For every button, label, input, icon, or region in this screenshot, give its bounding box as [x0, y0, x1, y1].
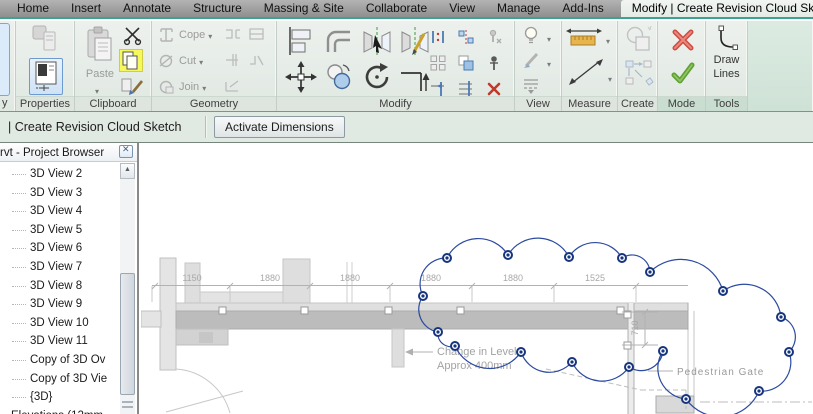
change-in-level-text: Change in Level: [437, 346, 517, 358]
panel-select-cutoff: y: [0, 21, 16, 111]
panel-tools: Draw Lines Tools: [706, 21, 748, 111]
override-caret[interactable]: [547, 54, 551, 72]
panel-mode: Mode: [658, 21, 706, 111]
hide-lightbulb-icon[interactable]: [522, 25, 542, 45]
annotations: Change in Level Approx 400mm Pedestrian …: [405, 346, 764, 378]
panel-create: Create: [618, 21, 658, 111]
pin-icon[interactable]: [485, 54, 503, 72]
join-icon: [158, 78, 176, 96]
plan-walls: [141, 258, 694, 414]
svg-text:1880: 1880: [503, 273, 523, 283]
ribbon: y Properties: [0, 21, 813, 112]
linework-icon[interactable]: [522, 76, 542, 96]
match-type-properties-icon[interactable]: [121, 77, 145, 97]
align-icon[interactable]: [285, 25, 317, 57]
tree-item[interactable]: Elevations (12mm: [0, 407, 120, 414]
join-label: Join: [179, 81, 199, 93]
profile-edit-icon[interactable]: [224, 78, 242, 94]
type-properties-icon[interactable]: [30, 24, 60, 56]
tab-modify-create-revision-cloud-sketch[interactable]: Modify | Create Revision Cloud Sketch: [621, 0, 813, 17]
ribbon-tab[interactable]: Manage: [486, 0, 551, 17]
measure-between-refs-icon[interactable]: [568, 55, 606, 89]
cut-geometry-icon: [158, 52, 176, 70]
finish-sketch-check-icon[interactable]: [670, 61, 696, 87]
array-icon[interactable]: [429, 54, 447, 72]
beam-join-icon[interactable]: [224, 26, 242, 42]
trim-extend-corner-icon[interactable]: [399, 61, 431, 93]
panel-view: View: [515, 21, 562, 111]
browser-scrollbar[interactable]: [120, 163, 135, 414]
panel-label-mode: Mode: [658, 96, 705, 111]
approx-400mm-text: Approx 400mm: [437, 360, 512, 372]
sketch-context-label: | Create Revision Cloud Sketch: [8, 112, 181, 142]
activate-dimensions-button[interactable]: Activate Dimensions: [214, 116, 345, 138]
tree-item[interactable]: {3D}: [0, 388, 120, 407]
hide-caret[interactable]: [547, 29, 551, 47]
tab-list: HomeInsertAnnotateStructureMassing & Sit…: [6, 0, 615, 17]
ribbon-tab[interactable]: Structure: [182, 0, 253, 17]
panel-label-properties: Properties: [16, 96, 74, 111]
ribbon-tab[interactable]: View: [438, 0, 486, 17]
main-area: rvt - Project Browser 3D View 2 3D View …: [0, 143, 813, 414]
cope-button[interactable]: Cope: [158, 25, 212, 45]
beam-cutback-icon[interactable]: [224, 52, 242, 68]
svg-text:1525: 1525: [585, 273, 605, 283]
panel-modify: Modify: [277, 21, 515, 111]
create-similar-icon[interactable]: [624, 59, 654, 91]
draw-lines-label-2[interactable]: Lines: [706, 68, 747, 80]
tree-item[interactable]: 3D View 2: [0, 165, 120, 184]
ribbon-tab[interactable]: Add-Ins: [551, 0, 614, 17]
mirror-pick-axis-icon[interactable]: [361, 25, 393, 57]
svg-text:1880: 1880: [421, 273, 441, 283]
draw-lines-arc-icon[interactable]: [714, 24, 742, 52]
tree-item[interactable]: Copy of 3D Ov: [0, 351, 120, 370]
tree-item[interactable]: 3D View 10: [0, 314, 120, 333]
cut-button[interactable]: Cut: [158, 51, 203, 71]
ribbon-tab-bar: HomeInsertAnnotateStructureMassing & Sit…: [0, 0, 813, 19]
splitter-grip-icon[interactable]: [122, 401, 133, 408]
panel-clipboard: Paste Clipboard: [75, 21, 152, 111]
draw-lines-label-1[interactable]: Draw: [706, 54, 747, 66]
tree-item[interactable]: 3D View 11: [0, 332, 120, 351]
properties-button[interactable]: [29, 58, 63, 95]
ribbon-tab[interactable]: Home: [6, 0, 60, 17]
cut-label: Cut: [179, 55, 196, 67]
cope-icon: [158, 26, 176, 44]
ribbon-tab[interactable]: Massing & Site: [253, 0, 355, 17]
scrollbar-thumb[interactable]: [120, 273, 135, 395]
svg-text:710: 710: [630, 320, 640, 335]
scale-icon[interactable]: [457, 54, 475, 72]
panel-label-view: View: [515, 96, 561, 111]
ribbon-tab[interactable]: Annotate: [112, 0, 182, 17]
unjoin-icon[interactable]: [248, 52, 266, 68]
project-browser-tree: 3D View 2 3D View 3 3D View 4 3D View 5 …: [0, 165, 120, 414]
svg-text:1880: 1880: [340, 273, 360, 283]
drawing-canvas[interactable]: 1150 1880 1880 1880 1880 1525 710 Change…: [141, 143, 813, 414]
rotate-icon[interactable]: [361, 61, 393, 93]
svg-text:1880: 1880: [260, 273, 280, 283]
panel-geometry: Cope Cut Join Geometry: [152, 21, 277, 111]
split-with-gap-icon[interactable]: [457, 28, 475, 46]
move-icon[interactable]: [285, 61, 317, 93]
copy-modify-icon[interactable]: [323, 61, 355, 93]
panel-label-create: Create: [618, 96, 657, 111]
ribbon-tab[interactable]: Insert: [60, 0, 112, 17]
measure-tape-icon[interactable]: [566, 25, 604, 51]
options-bar: | Create Revision Cloud Sketch Activate …: [0, 112, 813, 143]
measure-caret[interactable]: [606, 31, 610, 49]
tree-item[interactable]: 3D View 9: [0, 295, 120, 314]
wall-join-icon[interactable]: [248, 26, 266, 42]
paste-icon[interactable]: [85, 26, 115, 66]
measure2-caret[interactable]: [608, 69, 612, 87]
tree-item[interactable]: 3D View 7: [0, 258, 120, 277]
project-browser-title: rvt - Project Browser: [0, 145, 137, 162]
pedestrian-gate-text: Pedestrian Gate: [677, 367, 764, 378]
create-group-icon[interactable]: [624, 24, 654, 56]
join-button[interactable]: Join: [158, 77, 206, 97]
cut-caret[interactable]: [199, 52, 203, 70]
panel-label-clipboard: Clipboard: [75, 96, 151, 111]
ribbon-tab[interactable]: Collaborate: [355, 0, 438, 17]
copy-icon-highlighted[interactable]: [119, 49, 143, 72]
modify-select-label-partial: y: [2, 96, 8, 111]
cope-label: Cope: [179, 29, 205, 41]
cancel-sketch-x-icon[interactable]: [670, 27, 696, 53]
paste-button-label[interactable]: Paste: [83, 68, 117, 80]
options-separator: [205, 116, 206, 138]
split-element-icon[interactable]: [429, 28, 447, 46]
mirror-draw-axis-icon[interactable]: [399, 25, 431, 57]
offset-icon[interactable]: [323, 25, 355, 57]
tree-item[interactable]: 3D View 5: [0, 221, 120, 240]
panel-properties: Properties: [16, 21, 75, 111]
join-caret[interactable]: [202, 78, 206, 96]
modify-select-button-partial[interactable]: [0, 23, 10, 96]
tree-item[interactable]: 3D View 6: [0, 239, 120, 258]
panel-measure: Measure: [562, 21, 618, 111]
project-browser: rvt - Project Browser 3D View 2 3D View …: [0, 143, 139, 414]
panel-label-geometry: Geometry: [152, 96, 276, 111]
unpin-icon[interactable]: [485, 28, 503, 46]
panel-label-modify: Modify: [277, 96, 514, 111]
ribbon-empty-area: [748, 21, 813, 111]
svg-text:1150: 1150: [182, 273, 201, 283]
panel-label-tools: Tools: [706, 96, 747, 111]
cut-scissors-icon[interactable]: [123, 26, 143, 46]
cope-caret[interactable]: [208, 26, 212, 44]
properties-palette-icon: [30, 59, 62, 94]
scroll-up-arrow-icon[interactable]: [120, 163, 135, 179]
tree-item[interactable]: Copy of 3D Vie: [0, 370, 120, 389]
close-icon[interactable]: [119, 145, 133, 158]
tree-item[interactable]: 3D View 3: [0, 184, 120, 203]
override-graphics-brush-icon[interactable]: [522, 50, 542, 70]
tree-item[interactable]: 3D View 8: [0, 277, 120, 296]
tree-item[interactable]: 3D View 4: [0, 202, 120, 221]
panel-label-measure: Measure: [562, 96, 617, 111]
